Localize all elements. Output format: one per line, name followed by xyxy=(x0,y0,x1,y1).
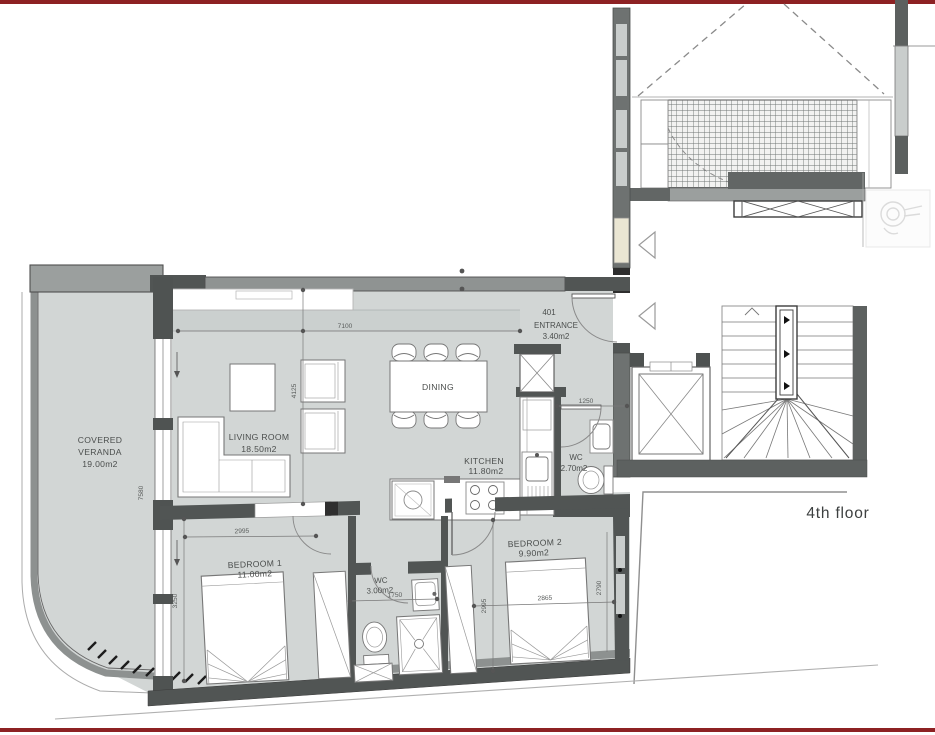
wc-main-area: 2.70m2 xyxy=(561,464,588,473)
bed xyxy=(201,572,289,684)
top-wall-end xyxy=(565,277,630,291)
dim-veranda-side: 3250 xyxy=(172,593,179,608)
tall-cabinet xyxy=(520,354,554,392)
bedroom2-furniture xyxy=(505,558,590,664)
wc2-label: WC xyxy=(374,576,388,586)
faucet-icon xyxy=(535,453,539,457)
vanity xyxy=(354,663,393,682)
floorplan-canvas: 4th floor xyxy=(0,0,935,735)
neighbor-door xyxy=(614,218,629,263)
washing-machine xyxy=(392,481,434,519)
wall xyxy=(895,0,908,46)
pocket-door xyxy=(255,502,331,518)
landing-wall xyxy=(728,172,865,189)
dining-label: DINING xyxy=(422,382,454,392)
wc2-sink xyxy=(412,579,440,611)
floorplan-page: 4th floor xyxy=(0,0,935,735)
bedroom1-area: 11.00m2 xyxy=(237,568,272,580)
bottom-red-border xyxy=(0,728,935,732)
wall xyxy=(895,136,908,174)
veranda-area: 19.00m2 xyxy=(82,459,118,469)
door-direction-icon xyxy=(639,303,655,329)
dim-bedroom2-width: 2865 xyxy=(537,595,552,603)
dim-veranda: 7580 xyxy=(138,485,145,500)
dim-living-width: 7100 xyxy=(338,323,353,330)
stair-right-wall xyxy=(853,306,867,460)
kitchen-label: KITCHEN xyxy=(464,456,504,466)
void-dashed-line xyxy=(638,4,746,96)
building-core: 4th floor xyxy=(613,0,935,684)
dim-wc2-width: 1750 xyxy=(387,592,402,600)
veranda-label-line1: COVERED xyxy=(78,435,123,445)
staircase xyxy=(722,306,867,460)
veranda-label-line2: VERANDA xyxy=(78,447,122,457)
wardrobe xyxy=(445,565,477,673)
armchair xyxy=(301,360,345,402)
floor-label: 4th floor xyxy=(806,505,869,522)
wc-sink xyxy=(590,420,613,453)
entrance-area: 3.40m2 xyxy=(543,332,570,341)
dim-bedroom2-left: 2995 xyxy=(481,598,488,613)
coffee-table xyxy=(230,364,275,411)
wc-main-label: WC xyxy=(569,453,583,462)
void-dashed-line xyxy=(784,4,884,94)
armchair xyxy=(301,409,345,453)
fixture-icon xyxy=(866,190,930,247)
living-room-label: LIVING ROOM xyxy=(229,432,290,442)
door-direction-icon xyxy=(639,232,655,258)
wardrobe xyxy=(313,571,351,679)
dim-wc-main: 1250 xyxy=(579,398,594,405)
window-wall-right xyxy=(613,515,629,661)
kitchen-area: 11.80m2 xyxy=(469,466,504,476)
dim-bedroom1-width: 2995 xyxy=(234,528,249,536)
dim-living-depth: 4125 xyxy=(291,383,298,398)
unit-number: 401 xyxy=(542,308,556,317)
bedroom1-furniture xyxy=(201,572,289,684)
bedroom2-area: 9.90m2 xyxy=(518,547,549,558)
dim-bedroom2-depth: 2790 xyxy=(596,580,603,595)
top-red-border xyxy=(0,0,935,4)
corridor-bottom-wall xyxy=(617,460,867,477)
landing-slab xyxy=(668,188,865,201)
entrance-label: ENTRANCE xyxy=(534,321,578,330)
elevator xyxy=(630,353,710,461)
vent-grill xyxy=(734,201,862,217)
bed xyxy=(505,558,590,664)
living-room-area: 18.50m2 xyxy=(241,444,277,454)
wall-stub xyxy=(627,188,670,201)
window-wall xyxy=(895,46,908,136)
veranda-top-wall xyxy=(30,265,163,292)
shower xyxy=(397,615,443,675)
